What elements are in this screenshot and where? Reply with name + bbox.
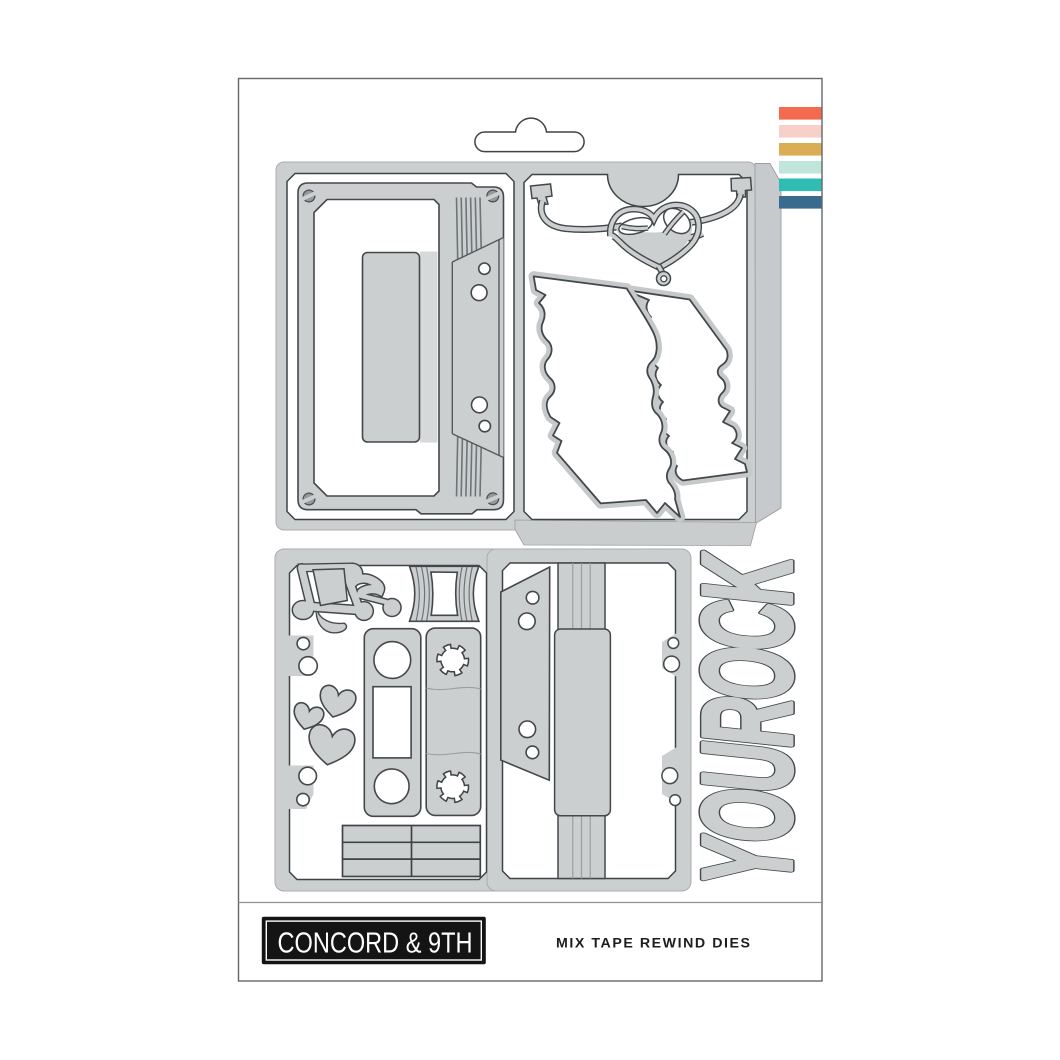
svg-text:YOUROCK: YOUROCK [676, 551, 818, 885]
svg-text:CONCORD & 9TH: CONCORD & 9TH [278, 928, 473, 960]
svg-text:MIX TAPE REWIND DIES: MIX TAPE REWIND DIES [556, 936, 750, 952]
